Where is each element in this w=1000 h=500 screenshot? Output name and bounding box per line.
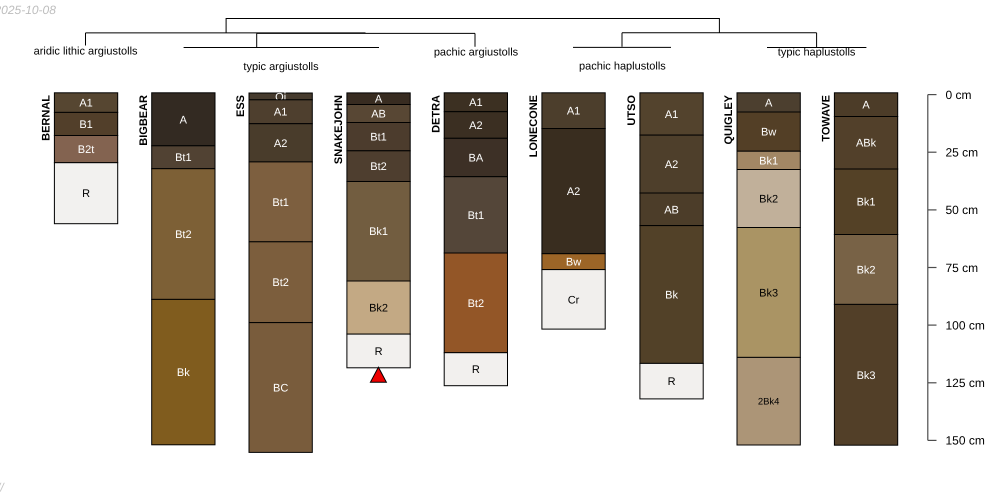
svg-text:0 cm: 0 cm xyxy=(946,88,972,102)
svg-text:Bk1: Bk1 xyxy=(759,155,778,167)
svg-text:A1: A1 xyxy=(79,98,92,110)
svg-text:ABk: ABk xyxy=(856,138,877,150)
svg-text:100 cm: 100 cm xyxy=(946,318,985,332)
svg-text:LONECONE: LONECONE xyxy=(528,95,540,157)
svg-text:Bt1: Bt1 xyxy=(175,152,192,164)
svg-text:Bt1: Bt1 xyxy=(468,210,485,222)
svg-text:A: A xyxy=(375,94,383,106)
svg-text:R: R xyxy=(668,376,676,388)
svg-text:Bk1: Bk1 xyxy=(369,226,388,238)
svg-text:75 cm: 75 cm xyxy=(946,261,979,275)
svg-text:R: R xyxy=(82,188,90,200)
svg-text:aridic lithic argiustolls: aridic lithic argiustolls xyxy=(34,45,138,57)
svg-text:BIGBEAR: BIGBEAR xyxy=(138,95,150,146)
svg-text:A1: A1 xyxy=(567,106,580,118)
svg-text:Bk1: Bk1 xyxy=(857,197,876,209)
svg-text:A1: A1 xyxy=(665,109,678,121)
svg-text:UTSO: UTSO xyxy=(626,95,638,126)
svg-text:Bk: Bk xyxy=(177,367,190,379)
svg-text:typic argiustolls: typic argiustolls xyxy=(243,61,319,73)
svg-text:Bk2: Bk2 xyxy=(857,264,876,276)
svg-text:Bk3: Bk3 xyxy=(759,287,778,299)
svg-text:pachic haplustolls: pachic haplustolls xyxy=(579,60,666,72)
svg-text:BC: BC xyxy=(273,383,288,395)
svg-text:typic haplustolls: typic haplustolls xyxy=(778,46,856,58)
svg-text:Bt2: Bt2 xyxy=(370,161,387,173)
svg-text:QUIGLEY: QUIGLEY xyxy=(723,94,735,144)
svg-text:2Bk4: 2Bk4 xyxy=(758,397,780,408)
svg-text:125 cm: 125 cm xyxy=(946,376,985,390)
svg-text:A: A xyxy=(180,114,188,126)
svg-text:Bt2: Bt2 xyxy=(175,229,192,241)
svg-text:R: R xyxy=(472,364,480,376)
svg-text:BERNAL: BERNAL xyxy=(41,95,53,141)
svg-text:Bk2: Bk2 xyxy=(759,194,778,206)
svg-text:DETRA: DETRA xyxy=(430,95,442,133)
svg-text:Bt1: Bt1 xyxy=(272,197,289,209)
svg-text:pachic argiustolls: pachic argiustolls xyxy=(434,46,519,58)
svg-text:A2: A2 xyxy=(469,120,482,132)
svg-text:150 cm: 150 cm xyxy=(946,434,985,448)
svg-text:B2t: B2t xyxy=(78,144,95,156)
svg-text:A1: A1 xyxy=(469,97,482,109)
svg-text:Cr: Cr xyxy=(568,294,580,306)
svg-text:Bt2: Bt2 xyxy=(468,298,485,310)
svg-text:B1: B1 xyxy=(79,119,92,131)
svg-text:Bk: Bk xyxy=(665,290,678,302)
svg-text:AB: AB xyxy=(371,109,386,121)
svg-text:25 cm: 25 cm xyxy=(946,146,979,160)
svg-text:Bt1: Bt1 xyxy=(370,132,387,144)
svg-text:A1: A1 xyxy=(274,107,287,119)
svg-text:Bw: Bw xyxy=(566,257,581,269)
svg-text:Bt2: Bt2 xyxy=(272,277,289,289)
svg-text:Bk3: Bk3 xyxy=(857,370,876,382)
svg-text:BA: BA xyxy=(469,153,484,165)
svg-text:A2: A2 xyxy=(567,186,580,198)
svg-text:SNAKEJOHN: SNAKEJOHN xyxy=(333,95,345,164)
svg-text:A2: A2 xyxy=(665,159,678,171)
svg-text:A: A xyxy=(862,100,870,112)
svg-text:A: A xyxy=(765,97,773,109)
svg-text:Bk2: Bk2 xyxy=(369,303,388,315)
svg-text:ESS: ESS xyxy=(235,95,247,117)
svg-text:A2: A2 xyxy=(274,138,287,150)
svg-text:2025-10-08: 2025-10-08 xyxy=(0,3,56,17)
svg-text:R: R xyxy=(375,346,383,358)
svg-text:50 cm: 50 cm xyxy=(946,203,979,217)
svg-text:Bw: Bw xyxy=(761,127,776,139)
svg-text:AB: AB xyxy=(664,204,679,216)
svg-text:TOWAVE: TOWAVE xyxy=(821,95,833,142)
